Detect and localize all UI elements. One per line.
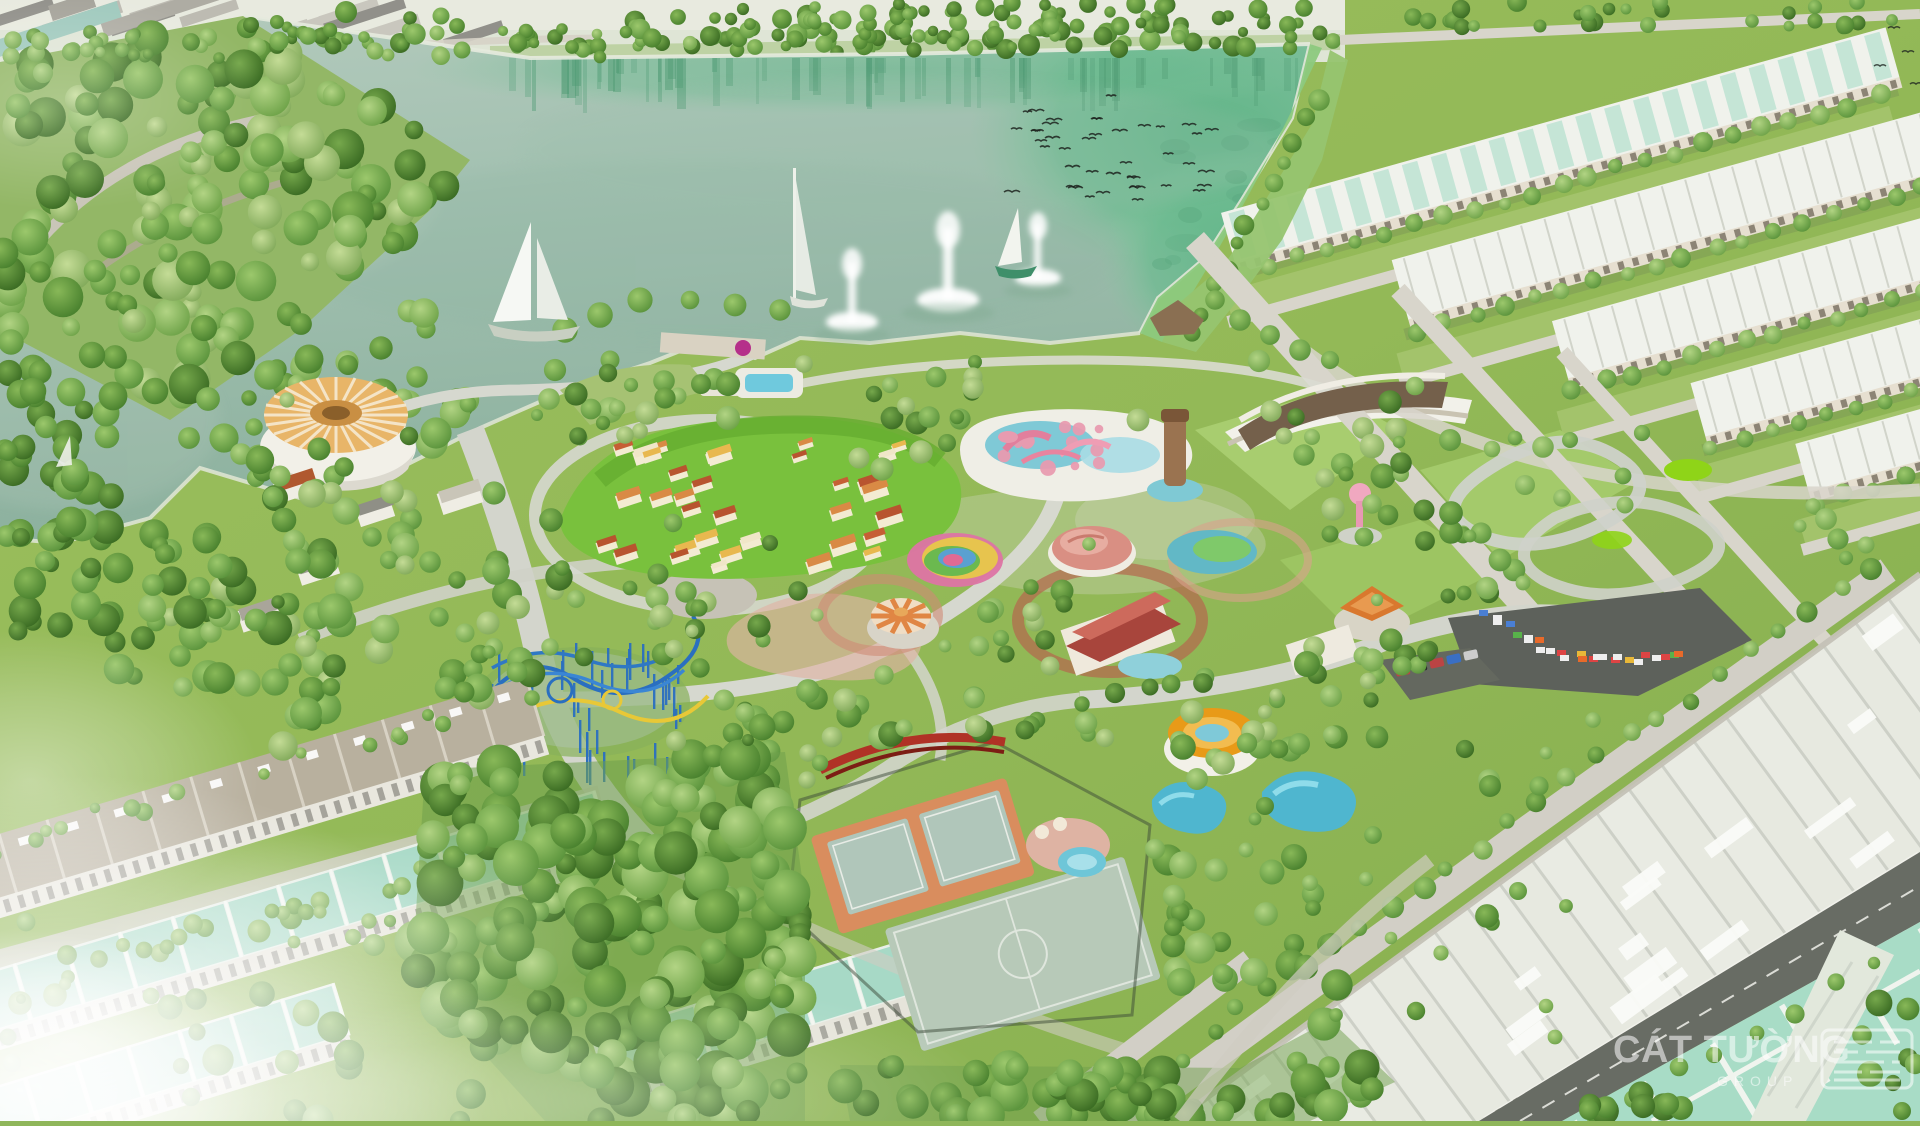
svg-text:GROUP: GROUP <box>1717 1073 1798 1089</box>
svg-text:CÁT TƯỜNG: CÁT TƯỜNG <box>1613 1027 1850 1071</box>
